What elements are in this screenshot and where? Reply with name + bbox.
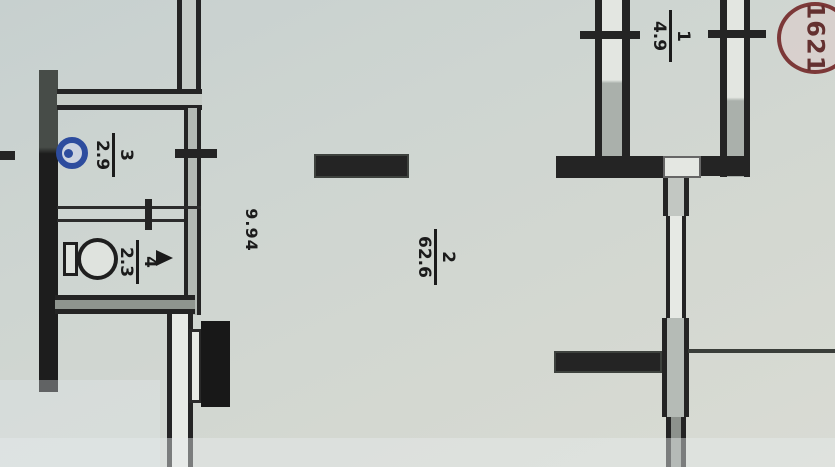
room-3-label: 3 2.9 [86,127,142,183]
room-1-label: 1 4.9 [646,4,696,68]
dimension-room2-length: 9.94 [242,195,262,265]
stamp-circle-icon: 1621 [777,2,835,74]
dimension-room2-length-value: 9.94 [243,208,262,251]
wall-right-vertical-c [662,318,689,417]
room-2-area: 62.6 [416,236,433,278]
room-1-area: 4.9 [651,21,668,51]
dimension-tick-room1-right [708,30,766,38]
wall-right-vertical-b [666,216,686,318]
wall-divider-room3-room4 [57,206,201,222]
wall-room1-left [595,0,630,160]
wall-exterior-left [39,70,58,392]
sink-icon [56,137,88,169]
dimension-tick-left-edge [0,151,15,160]
wall-right-vertical-a [663,178,689,216]
floorplan-drawing: 3 2.9 4 2.3 9.94 2 62.6 1 [0,0,835,467]
door-opening-main-wall [663,156,701,178]
room-1-number: 1 [675,30,692,42]
vent-shaft-solid [201,321,230,407]
wall-partition-middle [314,154,409,178]
floorplan-scan: 3 2.9 4 2.3 9.94 2 62.6 1 [0,0,835,467]
room-3-fraction-bar [113,133,116,178]
room-2-number: 2 [440,251,457,263]
wall-main-horizontal-left [556,156,663,178]
sink-dot-icon [64,149,73,158]
dimension-tick-room1-left [580,31,640,39]
dimension-tick-divider [145,199,152,230]
wall-room4-bottom [55,295,195,314]
toilet-icon [63,242,78,276]
room-4-number: 4 [142,256,159,268]
room-4-fraction-bar [137,240,140,285]
wall-room3-top [57,89,202,110]
room-2-label: 2 62.6 [408,222,464,292]
paper-shading-bottomleft [0,380,160,467]
wall-thin-line-right [688,349,835,353]
wall-partition-lower-right [554,351,662,373]
wall-room3-right [184,108,201,215]
wall-room1-right [720,0,750,177]
wall-top-vertical [177,0,201,95]
room-3-number: 3 [118,149,135,161]
dimension-tick-room3-right [175,149,217,158]
room-1-fraction-bar [670,10,673,61]
room-3-area: 2.9 [94,140,111,170]
stamp-number: 1621 [801,3,829,74]
room-4-area: 2.3 [118,247,135,277]
wall-main-horizontal-right [701,156,750,176]
room-2-fraction-bar [435,229,438,285]
room-4-label: 4 2.3 [110,234,166,290]
